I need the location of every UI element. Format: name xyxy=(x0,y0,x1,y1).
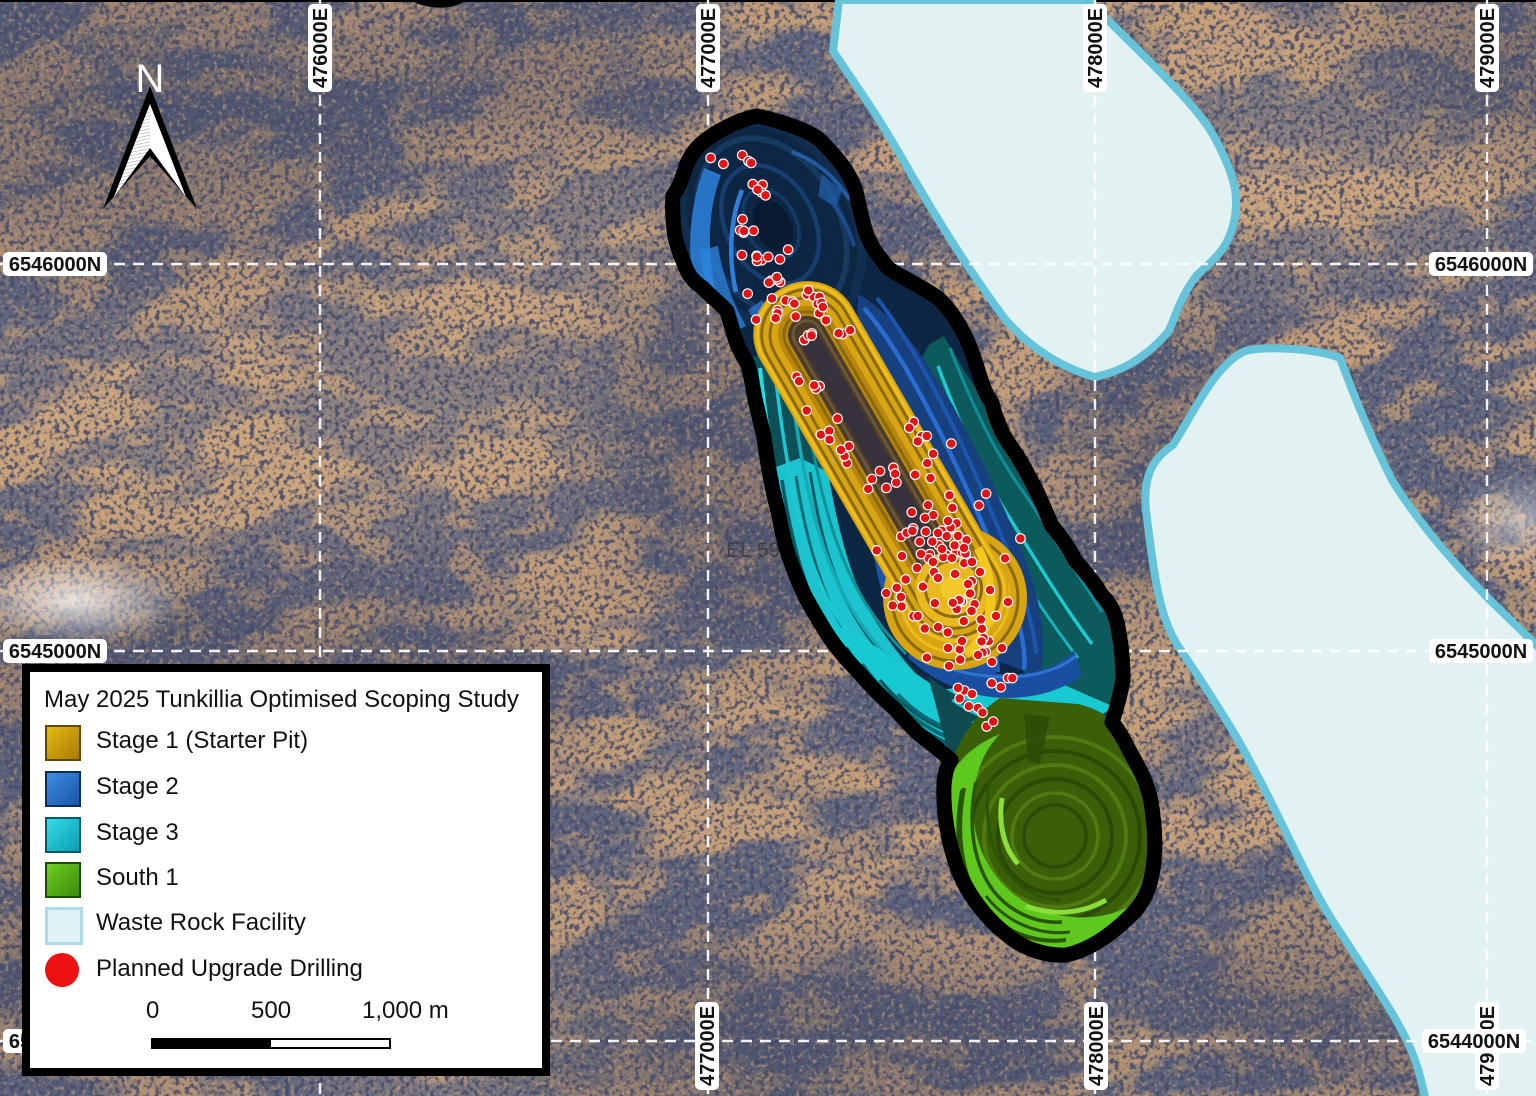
svg-text:476000E: 476000E xyxy=(310,8,332,88)
svg-text:6545000N: 6545000N xyxy=(9,641,101,663)
svg-text:6546000N: 6546000N xyxy=(9,254,101,276)
svg-text:478000E: 478000E xyxy=(1085,8,1107,88)
svg-text:479000E: 479000E xyxy=(1477,8,1499,88)
svg-text:6544000N: 6544000N xyxy=(1428,1031,1520,1053)
svg-text:N: N xyxy=(136,57,165,101)
svg-text:478000E: 478000E xyxy=(1086,1006,1108,1086)
svg-text:6545000N: 6545000N xyxy=(1435,641,1527,663)
svg-text:6546000N: 6546000N xyxy=(1435,254,1527,276)
svg-text:477000E: 477000E xyxy=(698,8,720,88)
svg-text:477000E: 477000E xyxy=(697,1006,719,1086)
